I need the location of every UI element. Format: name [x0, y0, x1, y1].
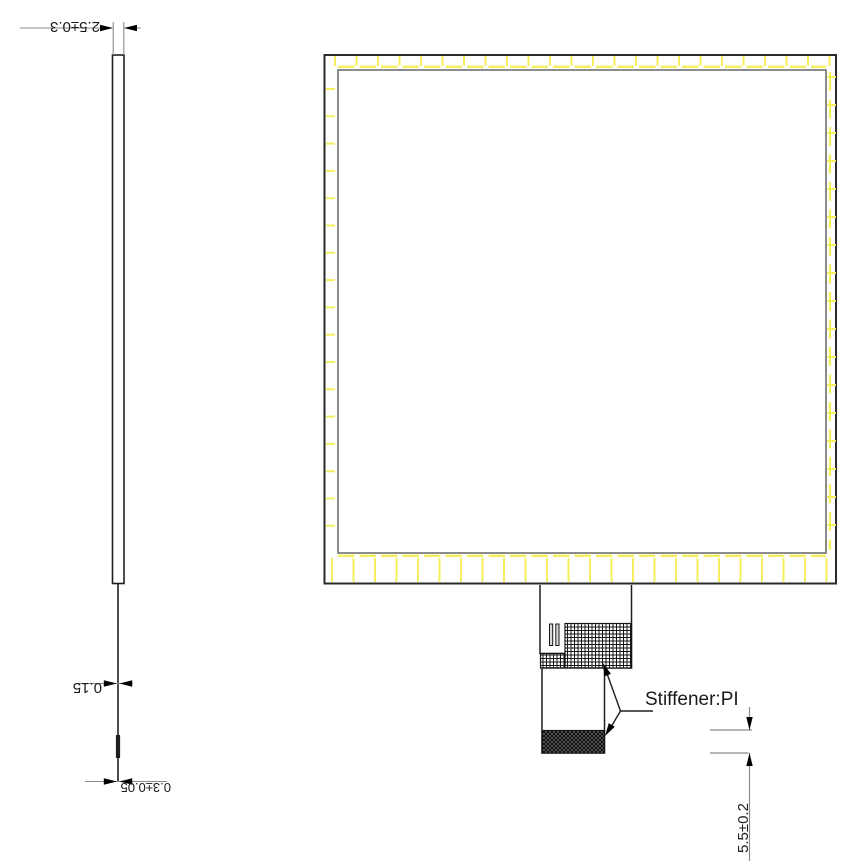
arrow-right-icon — [104, 778, 117, 784]
front-view-active-area — [338, 70, 826, 553]
front-view: Stiffener:PI 5.5±0.2 — [325, 55, 837, 861]
arrow-down-icon — [746, 717, 752, 730]
dim-stiffener-thickness-text: 0.3±0.05 — [120, 780, 171, 795]
dim-stiffener-height: 5.5±0.2 — [710, 707, 753, 861]
dim-stiffener-thickness: 0.3±0.05 — [85, 778, 171, 795]
arrow-left-icon — [119, 680, 132, 686]
side-view: 2.5±0.3 0.15 0.3±0.05 — [20, 18, 171, 795]
stiffener-hatch-bottom — [542, 731, 605, 754]
fpc-tab — [540, 585, 632, 753]
leader-arrow-down-icon — [605, 723, 615, 736]
stiffener-label: Stiffener:PI — [645, 689, 739, 710]
arrow-right-icon — [104, 680, 117, 686]
drawing-canvas: 2.5±0.3 0.15 0.3±0.05 — [0, 0, 848, 863]
dim-overall-thickness: 2.5±0.3 — [20, 18, 141, 55]
dim-overall-thickness-text: 2.5±0.3 — [50, 18, 100, 35]
dim-fpc-thickness-text: 0.15 — [73, 679, 102, 696]
dim-fpc-thickness: 0.15 — [73, 679, 133, 696]
technical-drawing: 2.5±0.3 0.15 0.3±0.05 — [0, 0, 848, 863]
arrow-up-icon — [746, 753, 752, 766]
side-view-stiffener-segment — [116, 735, 120, 758]
dim-stiffener-height-text: 5.5±0.2 — [735, 803, 752, 853]
arrow-left-icon — [124, 25, 137, 31]
arrow-right-icon — [100, 25, 113, 31]
side-view-panel-body — [113, 55, 125, 584]
